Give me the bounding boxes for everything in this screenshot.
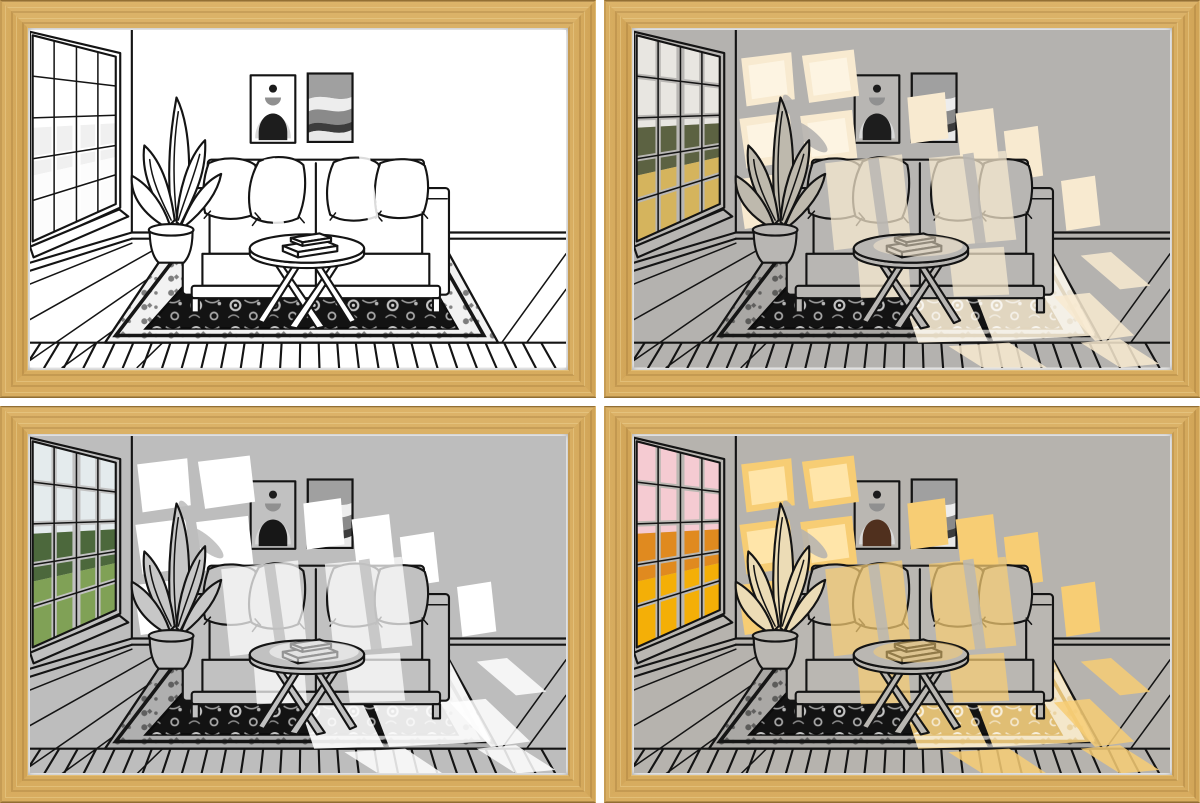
framed-light-painting-line-art-off xyxy=(0,0,596,398)
frame-mat xyxy=(28,28,568,370)
oak-frame xyxy=(0,406,596,803)
oak-frame xyxy=(0,0,596,398)
wall-art-arch xyxy=(855,481,900,548)
living-room-scene xyxy=(30,30,566,368)
living-room-scene xyxy=(30,436,566,774)
wall-art-arch xyxy=(251,75,296,143)
oak-frame xyxy=(604,0,1200,398)
window xyxy=(30,437,128,663)
frame-mat xyxy=(28,434,568,776)
framed-light-painting-golden-hour xyxy=(604,406,1200,803)
frame-mat xyxy=(632,434,1172,776)
product-image-grid xyxy=(0,0,1200,803)
window xyxy=(634,437,732,663)
living-room-scene xyxy=(634,30,1170,368)
living-room-scene xyxy=(634,436,1170,774)
window xyxy=(30,32,128,258)
oak-frame xyxy=(604,406,1200,803)
framed-light-painting-bright-white xyxy=(0,406,596,803)
wall-art-arch xyxy=(855,75,900,143)
wall-art-arch xyxy=(251,481,296,548)
framed-light-painting-warm-white-glow xyxy=(604,0,1200,398)
window xyxy=(634,32,732,258)
frame-mat xyxy=(632,28,1172,370)
